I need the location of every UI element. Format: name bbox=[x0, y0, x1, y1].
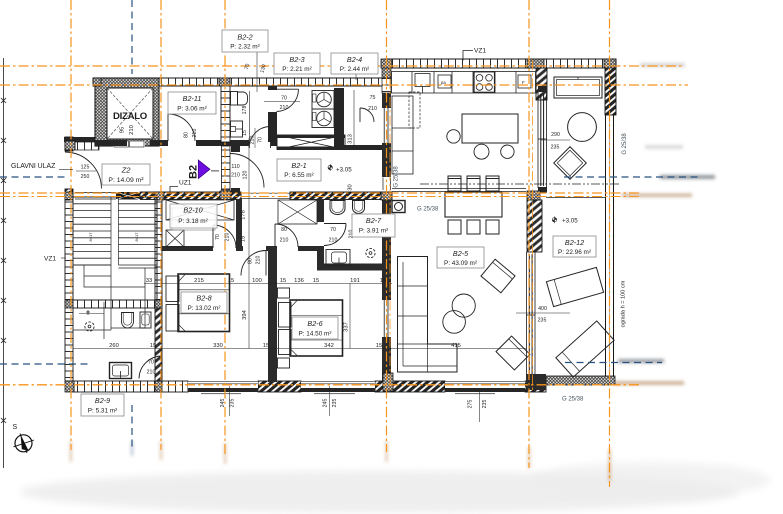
svg-text:210: 210 bbox=[250, 136, 256, 145]
svg-text:75: 75 bbox=[370, 95, 376, 101]
svg-text:342: 342 bbox=[324, 343, 334, 349]
svg-text:250: 250 bbox=[81, 174, 90, 180]
svg-text:210: 210 bbox=[280, 105, 289, 111]
svg-text:B2-12: B2-12 bbox=[565, 238, 584, 247]
svg-text:B2-11: B2-11 bbox=[183, 94, 202, 103]
svg-text:+3.05: +3.05 bbox=[336, 167, 352, 174]
svg-text:8×17: 8×17 bbox=[88, 232, 93, 242]
svg-text:Z2: Z2 bbox=[121, 166, 132, 175]
svg-text:15: 15 bbox=[280, 278, 286, 284]
svg-text:235: 235 bbox=[332, 399, 338, 408]
svg-text:P: 3.06 m²: P: 3.06 m² bbox=[177, 106, 206, 113]
svg-text:B2-3: B2-3 bbox=[289, 55, 304, 64]
svg-text:80: 80 bbox=[281, 227, 287, 233]
svg-text:P: 3.91 m²: P: 3.91 m² bbox=[359, 228, 388, 235]
svg-text:P: 6.55 m²: P: 6.55 m² bbox=[284, 172, 313, 179]
svg-text:P: 13.02 m²: P: 13.02 m² bbox=[187, 305, 220, 312]
svg-text:P: 22.96 m²: P: 22.96 m² bbox=[558, 249, 591, 256]
svg-text:235: 235 bbox=[230, 399, 236, 408]
svg-text:210: 210 bbox=[225, 233, 231, 242]
svg-text:245: 245 bbox=[220, 399, 226, 408]
svg-text:+3.05: +3.05 bbox=[562, 218, 578, 225]
svg-text:210: 210 bbox=[329, 238, 338, 244]
svg-text:400: 400 bbox=[538, 306, 547, 312]
svg-text:178: 178 bbox=[242, 106, 248, 115]
svg-text:8×17: 8×17 bbox=[134, 232, 139, 242]
svg-text:P: 5.31 m²: P: 5.31 m² bbox=[88, 408, 117, 415]
svg-text:191: 191 bbox=[350, 278, 360, 284]
svg-text:178: 178 bbox=[241, 210, 247, 220]
svg-text:15: 15 bbox=[376, 343, 382, 349]
svg-text:415: 415 bbox=[451, 343, 461, 349]
svg-text:B2-2: B2-2 bbox=[237, 33, 252, 42]
svg-text:70: 70 bbox=[281, 96, 287, 102]
svg-text:G 25/38: G 25/38 bbox=[417, 207, 439, 213]
svg-text:210: 210 bbox=[256, 256, 262, 265]
svg-text:125: 125 bbox=[81, 165, 90, 171]
svg-text:VZ1: VZ1 bbox=[44, 256, 56, 263]
svg-text:120: 120 bbox=[243, 171, 249, 180]
svg-text:337: 337 bbox=[344, 322, 350, 332]
svg-text:ograda h = 100 cm: ograda h = 100 cm bbox=[621, 280, 627, 327]
svg-text:B2-5: B2-5 bbox=[453, 249, 469, 258]
svg-text:pa: pa bbox=[441, 80, 446, 85]
svg-text:33: 33 bbox=[146, 278, 152, 284]
svg-text:260: 260 bbox=[109, 343, 119, 349]
svg-text:313: 313 bbox=[348, 134, 354, 144]
svg-text:15: 15 bbox=[242, 130, 248, 136]
svg-text:F: F bbox=[522, 80, 525, 85]
svg-text:P: 43.09 m²: P: 43.09 m² bbox=[444, 260, 477, 267]
svg-text:70: 70 bbox=[330, 227, 336, 233]
svg-text:70: 70 bbox=[258, 137, 264, 143]
svg-text:210: 210 bbox=[231, 173, 240, 179]
svg-text:G 25/38: G 25/38 bbox=[622, 133, 628, 155]
svg-text:P: 2.44 m²: P: 2.44 m² bbox=[340, 66, 369, 73]
svg-text:15: 15 bbox=[263, 343, 269, 349]
svg-text:P: 14.09 m²: P: 14.09 m² bbox=[108, 177, 144, 184]
svg-text:235: 235 bbox=[482, 400, 488, 409]
svg-text:394: 394 bbox=[242, 309, 248, 319]
svg-text:VZ1: VZ1 bbox=[474, 48, 486, 55]
svg-text:S: S bbox=[13, 424, 18, 431]
svg-text:DIZALO: DIZALO bbox=[113, 111, 148, 122]
svg-text:P: 3.18 m²: P: 3.18 m² bbox=[178, 218, 207, 225]
svg-text:B2-9: B2-9 bbox=[95, 396, 110, 405]
svg-text:15: 15 bbox=[313, 278, 319, 284]
svg-text:210: 210 bbox=[192, 129, 198, 138]
svg-text:30: 30 bbox=[348, 184, 354, 190]
svg-text:245: 245 bbox=[323, 399, 329, 408]
svg-text:210: 210 bbox=[147, 370, 156, 376]
svg-text:95: 95 bbox=[120, 127, 126, 133]
svg-text:UZ1: UZ1 bbox=[179, 180, 192, 187]
svg-text:70: 70 bbox=[148, 360, 154, 366]
svg-text:15: 15 bbox=[150, 343, 156, 349]
svg-text:210: 210 bbox=[368, 106, 377, 112]
svg-text:B2-10: B2-10 bbox=[183, 206, 202, 215]
svg-text:P: 2.21 m²: P: 2.21 m² bbox=[282, 66, 311, 73]
svg-text:100: 100 bbox=[252, 278, 262, 284]
svg-text:275: 275 bbox=[468, 400, 474, 409]
svg-text:P: 2.32 m²: P: 2.32 m² bbox=[230, 44, 259, 51]
svg-text:G 25/38: G 25/38 bbox=[562, 397, 584, 403]
svg-text:GLAVNI ULAZ: GLAVNI ULAZ bbox=[11, 163, 55, 170]
svg-text:110: 110 bbox=[231, 164, 239, 170]
svg-text:235: 235 bbox=[551, 145, 560, 151]
svg-text:B2-6: B2-6 bbox=[307, 319, 322, 328]
svg-text:G 25/38: G 25/38 bbox=[394, 166, 400, 188]
svg-text:290: 290 bbox=[551, 132, 560, 138]
svg-text:B2-4: B2-4 bbox=[347, 55, 362, 64]
svg-text:70: 70 bbox=[215, 234, 221, 240]
svg-text:215: 215 bbox=[194, 278, 204, 284]
svg-text:15: 15 bbox=[380, 278, 386, 284]
svg-text:15: 15 bbox=[241, 236, 247, 242]
svg-text:330: 330 bbox=[213, 343, 223, 349]
svg-text:80: 80 bbox=[184, 132, 190, 138]
svg-text:136: 136 bbox=[294, 278, 304, 284]
svg-text:235: 235 bbox=[538, 318, 547, 324]
svg-text:210: 210 bbox=[129, 125, 135, 135]
svg-text:80: 80 bbox=[248, 258, 254, 264]
svg-text:15: 15 bbox=[228, 278, 234, 284]
svg-text:B2: B2 bbox=[188, 165, 200, 179]
svg-text:B2-1: B2-1 bbox=[291, 161, 306, 170]
svg-text:P: 14.50 m²: P: 14.50 m² bbox=[298, 331, 331, 338]
svg-text:B2-7: B2-7 bbox=[366, 216, 382, 225]
svg-text:210: 210 bbox=[280, 238, 289, 244]
svg-text:B2-8: B2-8 bbox=[196, 294, 211, 303]
